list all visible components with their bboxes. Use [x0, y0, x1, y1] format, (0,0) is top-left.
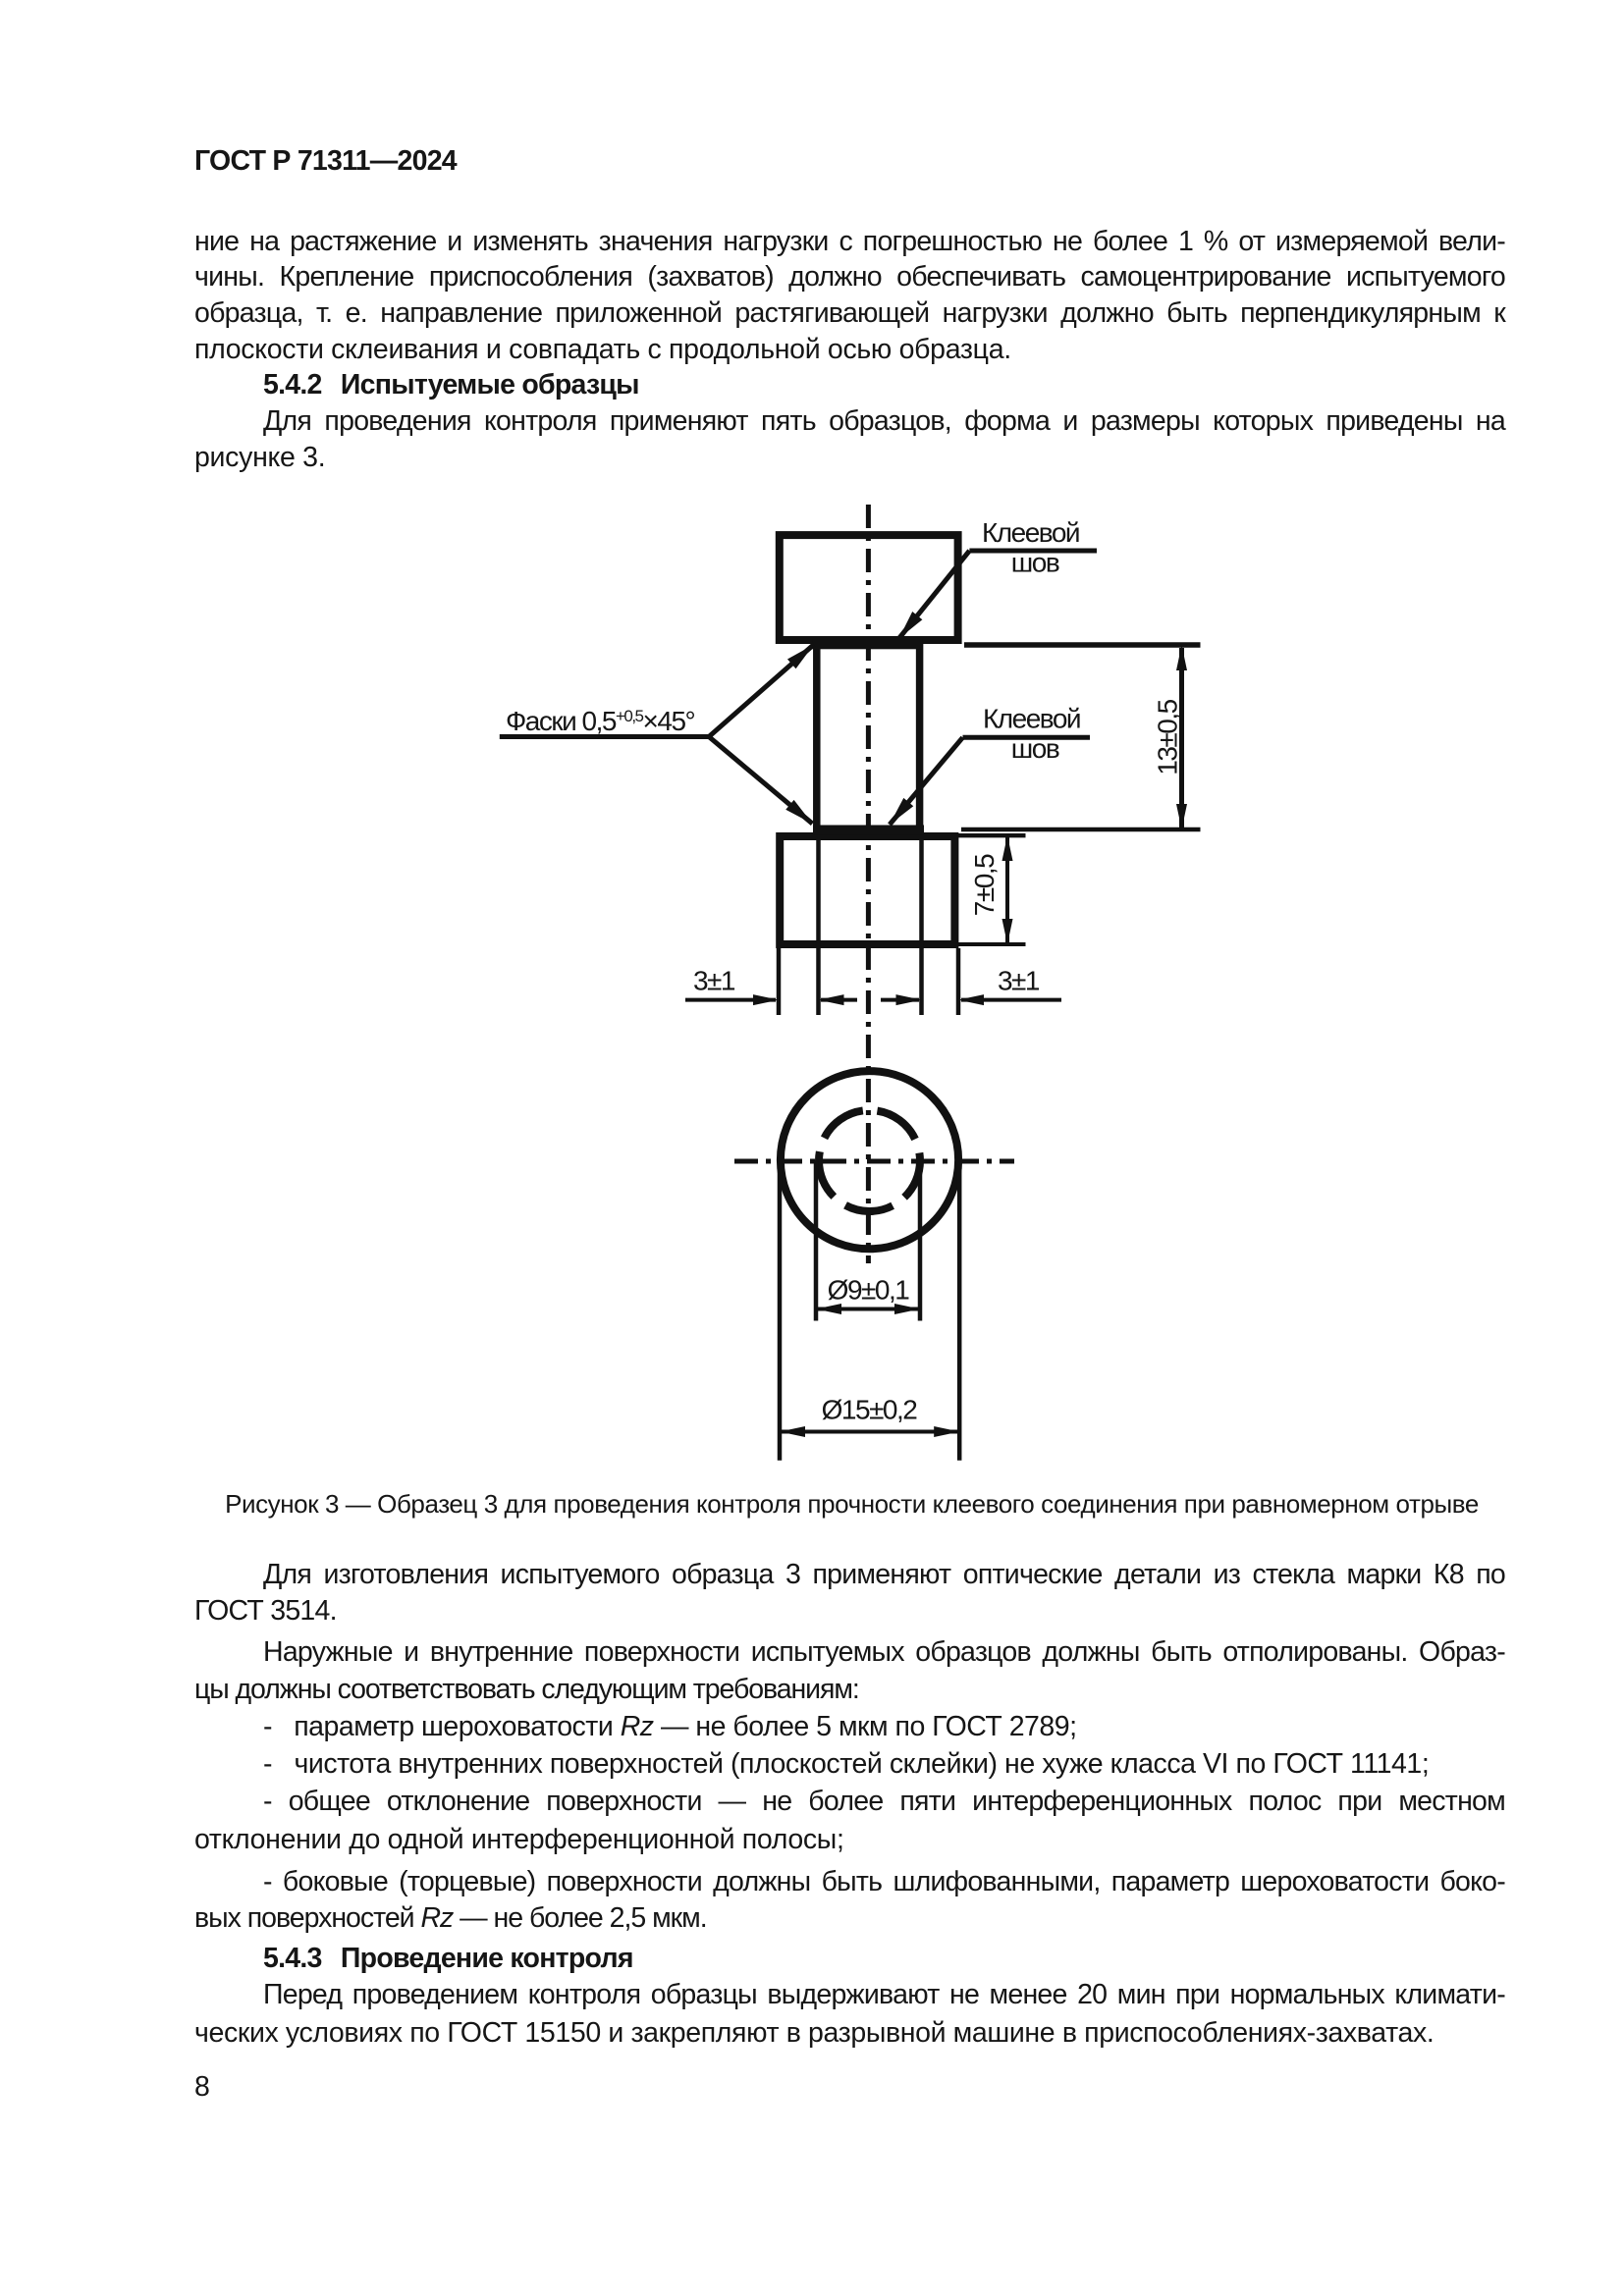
- svg-text:шов: шов: [1011, 548, 1059, 578]
- svg-text:Клеевой: Клеевой: [982, 517, 1079, 548]
- svg-text:Фаски 0,5+0,5×45°: Фаски 0,5+0,5×45°: [506, 706, 695, 736]
- svg-text:3±1: 3±1: [693, 965, 735, 995]
- svg-text:3±1: 3±1: [998, 965, 1040, 995]
- svg-text:Ø15±0,2: Ø15±0,2: [822, 1394, 918, 1424]
- svg-text:13±0,5: 13±0,5: [1153, 699, 1183, 774]
- svg-text:Ø9±0,1: Ø9±0,1: [828, 1274, 910, 1305]
- svg-text:7±0,5: 7±0,5: [969, 854, 1000, 916]
- svg-text:шов: шов: [1011, 733, 1059, 764]
- svg-text:Клеевой: Клеевой: [983, 704, 1080, 734]
